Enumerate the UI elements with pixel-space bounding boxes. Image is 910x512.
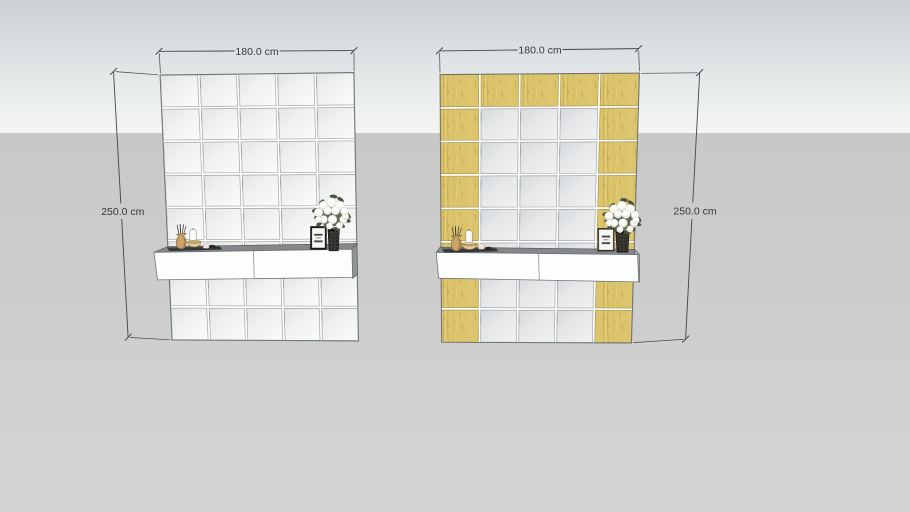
svg-text:250.0 cm: 250.0 cm [673, 206, 716, 218]
svg-text:180.0 cm: 180.0 cm [235, 46, 278, 58]
svg-text:180.0 cm: 180.0 cm [518, 45, 561, 57]
svg-text:250.0 cm: 250.0 cm [101, 206, 144, 218]
